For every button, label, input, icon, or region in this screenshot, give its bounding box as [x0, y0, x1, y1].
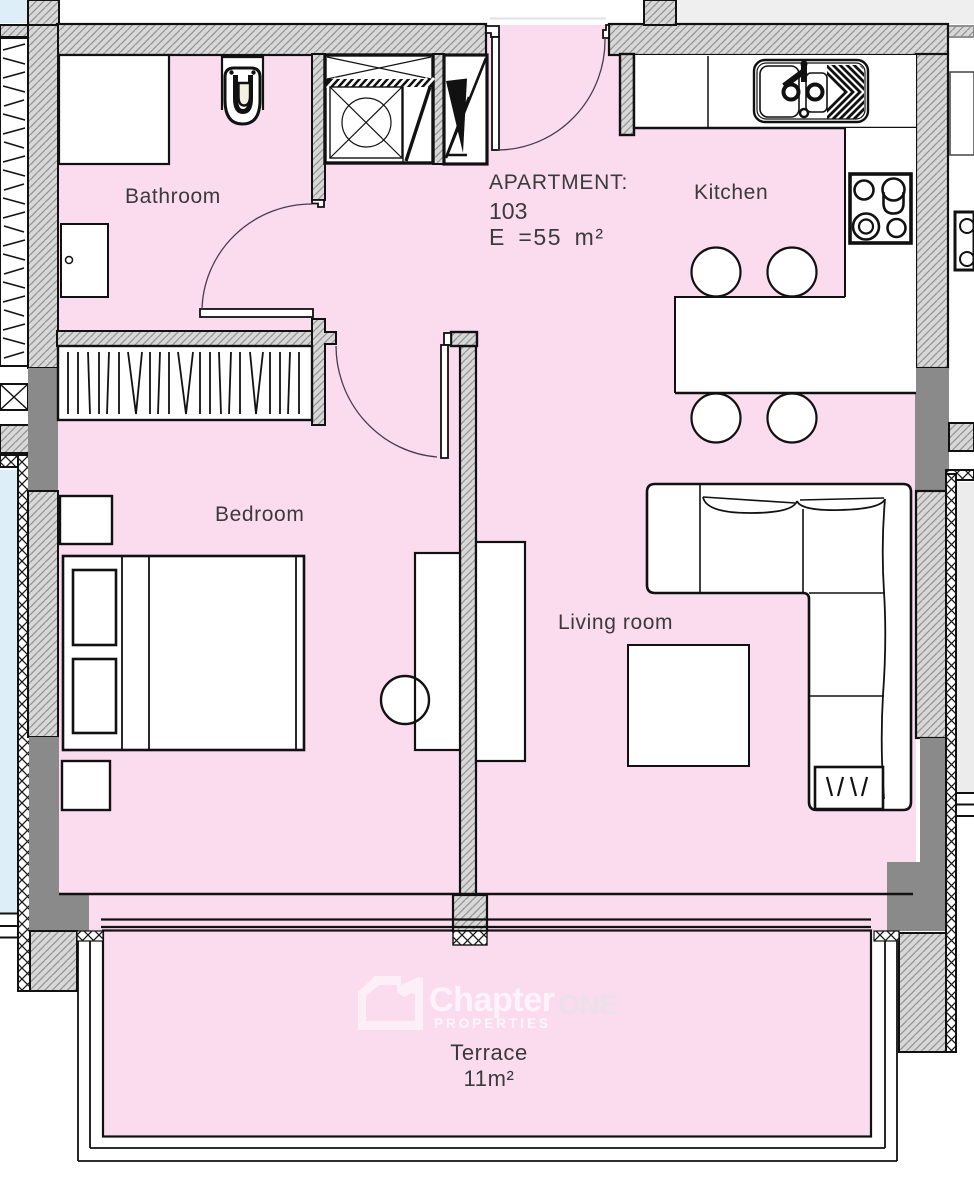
svg-text:Terrace: Terrace — [450, 1040, 528, 1065]
svg-text:11m²: 11m² — [464, 1066, 515, 1091]
svg-text:103: 103 — [489, 198, 527, 224]
svg-text:Living room: Living room — [558, 611, 673, 634]
svg-text:E =55 m²: E =55 m² — [489, 224, 605, 250]
svg-text:Bathroom: Bathroom — [125, 185, 221, 208]
svg-text:Bedroom: Bedroom — [215, 503, 304, 526]
svg-text:APARTMENT:: APARTMENT: — [489, 171, 628, 194]
svg-text:Chapter: Chapter — [429, 981, 555, 1019]
svg-text:ONE: ONE — [558, 989, 617, 1020]
svg-text:Kitchen: Kitchen — [694, 181, 768, 204]
svg-text:PROPERTIES: PROPERTIES — [434, 1016, 551, 1031]
